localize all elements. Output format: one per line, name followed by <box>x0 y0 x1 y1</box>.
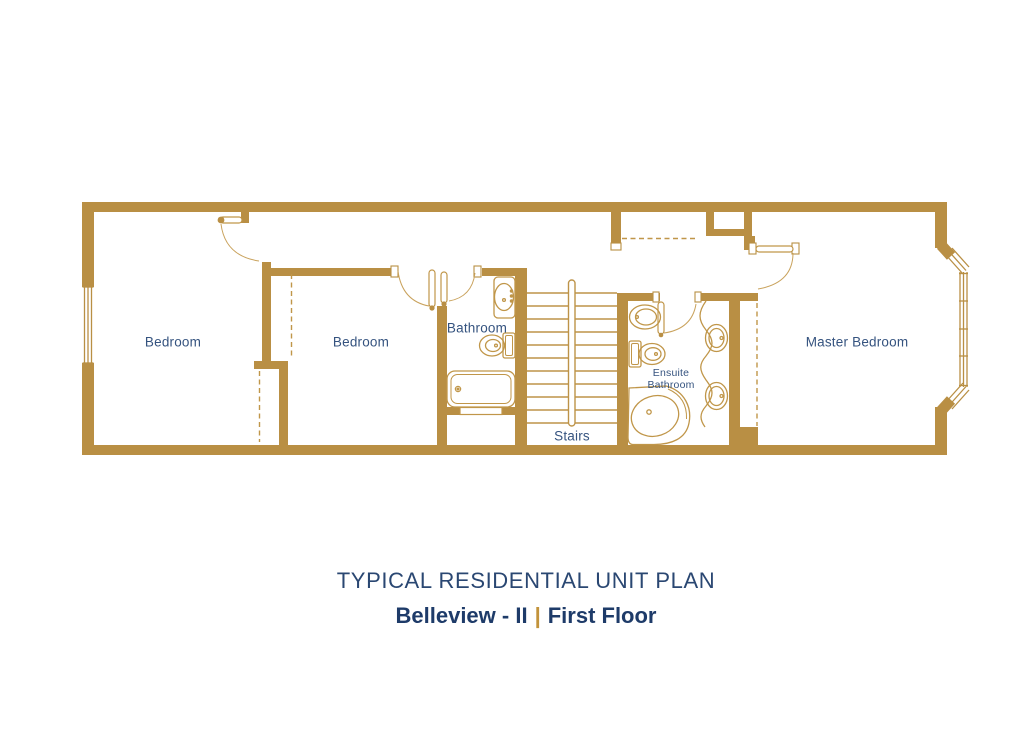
ensuite-bidet <box>630 305 661 329</box>
floor-plan-page: Bedroom Bedroom Bathroom Stairs Ensuite … <box>0 0 1024 750</box>
door-jamb <box>391 266 398 277</box>
room-label-stairs: Stairs <box>554 429 590 444</box>
wall-left-upper <box>82 202 94 287</box>
room-label-bedroom-2: Bedroom <box>333 335 389 350</box>
door-leaf <box>429 270 435 307</box>
wall-bay-corner-top <box>935 202 947 248</box>
wall-bedroom2-top <box>262 268 391 276</box>
bathroom-toilet <box>480 333 516 358</box>
door-leaf <box>441 272 447 303</box>
door-master <box>749 243 799 289</box>
door-swing-arc <box>449 273 475 301</box>
bay-corner-stubs <box>941 245 951 411</box>
ensuite-label-line2: Bathroom <box>647 379 694 391</box>
wall-stairs-ensuite <box>617 293 628 445</box>
floor-plan-drawing <box>0 0 1024 750</box>
plan-subtitle: Belleview - II|First Floor <box>14 603 1024 629</box>
room-label-ensuite-bathroom: Ensuite Bathroom <box>647 367 694 391</box>
hall-stub-jamb <box>611 243 621 250</box>
bathtub <box>447 371 515 407</box>
bay-stub-top <box>941 245 951 256</box>
wall-ensuite-top-right <box>697 293 758 301</box>
left-window <box>83 287 94 363</box>
room-label-bedroom-1: Bedroom <box>145 335 201 350</box>
wall-bathroom-stairs <box>515 268 527 445</box>
plan-title-block: TYPICAL RESIDENTIAL UNIT PLAN Belleview … <box>14 568 1024 629</box>
subtitle-separator: | <box>528 603 548 628</box>
wall-bed-divider-bottom <box>279 367 288 445</box>
door-jamb <box>695 292 701 302</box>
stair-rail <box>569 280 576 426</box>
wall-bottom <box>82 445 947 455</box>
wall-solid-block <box>729 427 758 446</box>
project-name: Belleview - II <box>396 603 528 628</box>
wall-niche-bottom <box>706 229 752 236</box>
wall-bedroom2-bathroom <box>437 306 447 445</box>
ensuite-toilet <box>629 341 665 367</box>
door-bathroom <box>441 266 481 307</box>
corner-bathtub <box>626 386 690 445</box>
room-label-bathroom: Bathroom <box>447 321 507 336</box>
door-swing-arc <box>758 253 793 289</box>
door-hinge-dot <box>218 217 225 224</box>
walls <box>82 202 947 455</box>
door-jamb <box>653 292 659 302</box>
door-swing-arc <box>664 304 696 333</box>
door-bedroom2 <box>391 266 435 311</box>
wall-left-lower <box>82 363 94 455</box>
wall-bed-divider-top <box>262 262 271 362</box>
door-leaf <box>756 246 793 252</box>
bathroom-fixtures <box>447 277 515 407</box>
bay-window <box>946 248 969 409</box>
wall-bathroom-bottom-right <box>502 407 527 415</box>
wall-ensuite-master <box>729 301 740 427</box>
stairs-drawing <box>527 280 617 426</box>
door-swing-arc <box>221 224 259 261</box>
plan-title: TYPICAL RESIDENTIAL UNIT PLAN <box>14 568 1024 594</box>
wall-top <box>82 202 947 212</box>
wall-hall-stub <box>611 212 621 245</box>
bathroom-sink <box>494 277 515 318</box>
door-hinge-dot <box>429 305 434 310</box>
ensuite-label-line1: Ensuite <box>647 367 694 379</box>
door-bedroom1 <box>218 217 259 261</box>
wall-bathroom-bottom-left <box>437 407 460 415</box>
door-swing-arc <box>398 271 429 306</box>
room-label-master-bedroom: Master Bedroom <box>806 335 909 350</box>
door-hinge-dot <box>659 333 664 338</box>
vanity-double-sink <box>700 301 728 427</box>
door-hinge-dot <box>441 301 446 306</box>
floor-name: First Floor <box>548 603 657 628</box>
door-jamb <box>749 243 756 254</box>
bathroom-vent-opening <box>460 408 502 415</box>
